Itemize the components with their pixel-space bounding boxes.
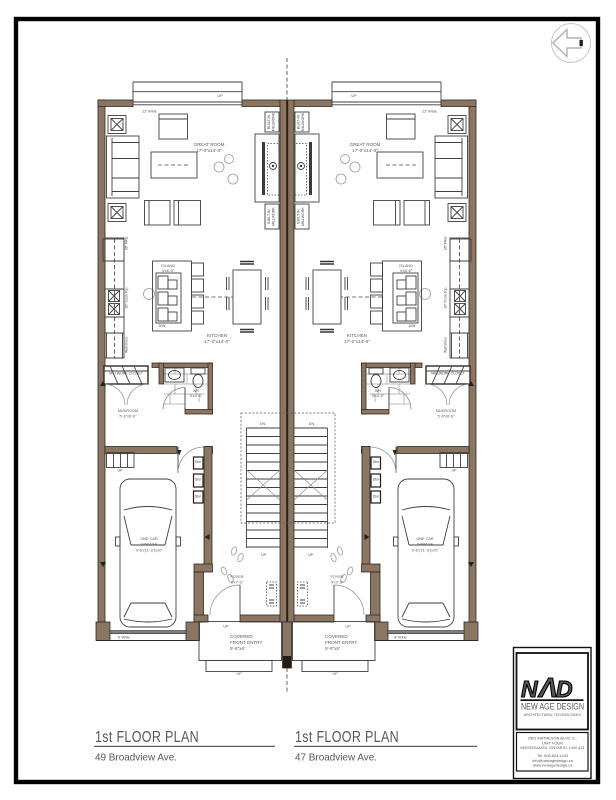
svg-text:4'x8'-6": 4'x8'-6": [162, 269, 175, 273]
svg-text:12' Wide: 12' Wide: [422, 110, 437, 114]
svg-text:COVERED: COVERED: [230, 634, 253, 639]
svg-text:BUILT-IN: BUILT-IN: [297, 209, 301, 224]
svg-text:Λ: Λ: [537, 672, 558, 703]
svg-text:UP: UP: [118, 469, 124, 473]
svg-text:5'-6"x6'-6": 5'-6"x6'-6": [437, 415, 455, 419]
svg-text:9'-6"(11'-3")x20': 9'-6"(11'-3")x20': [412, 549, 439, 553]
svg-text:Stor: Stor: [373, 478, 380, 482]
svg-text:8' Wide: 8' Wide: [394, 636, 407, 640]
svg-text:FOYER: FOYER: [330, 575, 343, 579]
svg-text:Stor: Stor: [195, 460, 202, 464]
svg-text:MILLWORK: MILLWORK: [301, 207, 305, 226]
svg-text:GARAGE: GARAGE: [417, 543, 434, 547]
svg-text:Wall Oven: Wall Oven: [444, 337, 448, 353]
svg-text:30" Cook Top: 30" Cook Top: [444, 288, 448, 309]
svg-text:12' Wide: 12' Wide: [142, 110, 157, 114]
svg-text:MILLWORK CLOSET: MILLWORK CLOSET: [109, 372, 143, 376]
svg-text:MILLWORK: MILLWORK: [301, 112, 305, 131]
svg-text:1st FLOOR PLAN: 1st FLOOR PLAN: [95, 729, 199, 746]
svg-text:BUILT-IN: BUILT-IN: [267, 209, 271, 224]
svg-text:D/W: D/W: [409, 324, 417, 328]
svg-text:www.newagedesign.ca: www.newagedesign.ca: [533, 763, 573, 768]
svg-text:UP: UP: [223, 625, 229, 629]
svg-text:4'x8'-6": 4'x8'-6": [400, 269, 413, 273]
svg-text:MILLWORK: MILLWORK: [272, 112, 276, 131]
svg-text:5'-6"x6'-6": 5'-6"x6'-6": [119, 415, 137, 419]
svg-text:ISLAND: ISLAND: [161, 264, 175, 268]
svg-text:UP: UP: [217, 94, 223, 98]
svg-text:17'-0"x14'-0": 17'-0"x14'-0": [204, 339, 230, 344]
svg-text:17'-0"x14'-0": 17'-0"x14'-0": [344, 339, 370, 344]
svg-text:KITCHEN: KITCHEN: [207, 333, 227, 338]
svg-text:49 Broadview Ave.: 49 Broadview Ave.: [95, 752, 177, 764]
svg-text:9'-6"(11'-3")x20': 9'-6"(11'-3")x20': [136, 549, 163, 553]
svg-text:MILLWORK CLOSET: MILLWORK CLOSET: [431, 372, 465, 376]
svg-text:1st FLOOR PLAN: 1st FLOOR PLAN: [295, 729, 399, 746]
svg-text:COVERED: COVERED: [325, 634, 348, 639]
svg-text:36" FRG.: 36" FRG.: [444, 236, 448, 250]
svg-text:WR: WR: [375, 389, 382, 393]
svg-text:Stor: Stor: [373, 460, 380, 464]
svg-text:9'-6"x6': 9'-6"x6': [325, 646, 340, 651]
svg-text:9'-6"x6': 9'-6"x6': [230, 646, 245, 651]
svg-text:GARAGE: GARAGE: [141, 543, 158, 547]
svg-text:9'x7'-3": 9'x7'-3": [231, 581, 244, 585]
svg-text:ARCHITECTURAL TECHNOLOGIES: ARCHITECTURAL TECHNOLOGIES: [524, 713, 581, 717]
svg-text:MUDROOM: MUDROOM: [436, 409, 456, 413]
svg-text:17'-0"x14'-0": 17'-0"x14'-0": [352, 148, 378, 153]
svg-text:KITCHEN: KITCHEN: [347, 333, 367, 338]
svg-text:17'-0"x14'-0": 17'-0"x14'-0": [196, 148, 222, 153]
svg-text:DN: DN: [260, 422, 266, 426]
svg-text:Stor: Stor: [195, 495, 202, 499]
svg-text:UP: UP: [452, 469, 458, 473]
svg-text:D: D: [556, 676, 573, 702]
svg-text:ISLAND: ISLAND: [399, 264, 413, 268]
svg-text:ONE CAR: ONE CAR: [416, 537, 434, 541]
svg-text:UP: UP: [345, 625, 351, 629]
svg-text:UP: UP: [261, 553, 267, 557]
svg-text:MILLWORK: MILLWORK: [272, 207, 276, 226]
svg-text:D/W: D/W: [159, 324, 167, 328]
svg-text:Stor: Stor: [373, 495, 380, 499]
svg-text:GREAT ROOM: GREAT ROOM: [194, 142, 225, 147]
svg-text:8' Wide: 8' Wide: [118, 636, 131, 640]
svg-text:BUILT-IN: BUILT-IN: [297, 114, 301, 129]
svg-text:DN: DN: [309, 422, 315, 426]
svg-text:FRONT ENTRY: FRONT ENTRY: [230, 640, 263, 645]
svg-text:UP: UP: [308, 553, 314, 557]
svg-text:47 Broadview Ave.: 47 Broadview Ave.: [295, 752, 377, 764]
svg-text:UP: UP: [236, 672, 242, 676]
svg-text:9'x7'-3": 9'x7'-3": [331, 581, 344, 585]
svg-text:UP: UP: [351, 94, 357, 98]
svg-text:NEW AGE DESIGN: NEW AGE DESIGN: [521, 702, 584, 712]
svg-text:WR: WR: [193, 389, 200, 393]
svg-text:Wall Oven: Wall Oven: [125, 337, 129, 353]
svg-text:UP: UP: [332, 672, 338, 676]
svg-text:FRONT ENTRY: FRONT ENTRY: [325, 640, 358, 645]
svg-text:5'x4'-6": 5'x4'-6": [372, 394, 385, 398]
svg-text:FOYER: FOYER: [230, 575, 243, 579]
svg-text:GREAT ROOM: GREAT ROOM: [350, 142, 381, 147]
svg-text:30" Cook Top: 30" Cook Top: [125, 288, 129, 309]
svg-text:BUILT-IN: BUILT-IN: [267, 114, 271, 129]
svg-text:MUDROOM: MUDROOM: [118, 409, 138, 413]
svg-text:MISSISSAUGA, ONTARIO, L4W 4Z1: MISSISSAUGA, ONTARIO, L4W 4Z1: [520, 745, 584, 750]
svg-text:5'x4'-6": 5'x4'-6": [190, 394, 203, 398]
svg-text:Stor: Stor: [195, 478, 202, 482]
svg-text:36" FRG.: 36" FRG.: [125, 236, 129, 250]
svg-text:N: N: [521, 676, 538, 702]
svg-text:ONE CAR: ONE CAR: [140, 537, 158, 541]
